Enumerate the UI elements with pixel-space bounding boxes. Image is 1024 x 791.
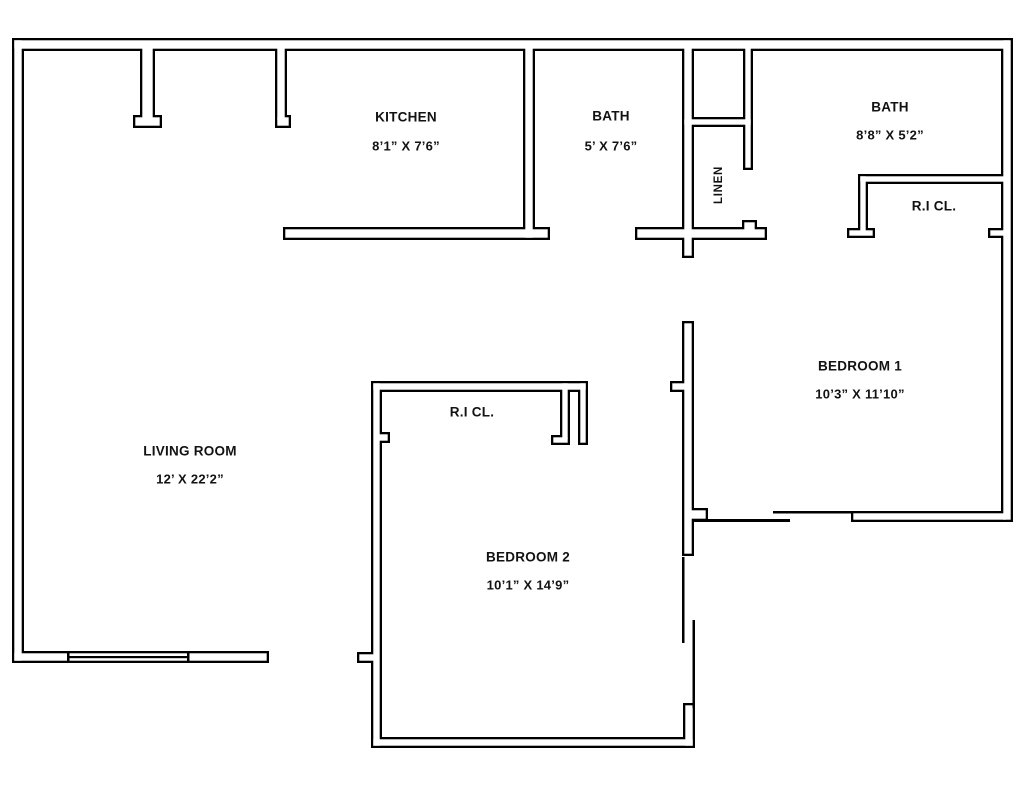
wall-core <box>359 654 374 660</box>
wall-line <box>773 511 853 514</box>
wall-core <box>14 40 21 660</box>
wall-core <box>990 230 1005 235</box>
wall-core <box>562 383 567 438</box>
wall-core <box>684 323 691 553</box>
wall-core <box>378 434 387 440</box>
room-label-linen: LINEN <box>713 166 725 204</box>
floor-plan: KITCHEN 8’1” X 7’6” BATH 5’ X 7’6” LINEN… <box>0 0 1024 791</box>
wall-core <box>690 510 705 518</box>
room-dims-kitchen: 8’1” X 7’6” <box>372 139 440 154</box>
wall-line <box>693 620 696 708</box>
wall-line <box>67 653 70 662</box>
wall-core <box>373 739 692 745</box>
wall-core <box>684 119 750 124</box>
room-label-living-room: LIVING ROOM <box>143 444 237 459</box>
room-dims-living-room: 12’ X 22’2” <box>156 472 224 487</box>
wall-core <box>672 383 685 389</box>
wall-core <box>553 437 567 442</box>
room-dims-bedroom-2: 10’1” X 14’9” <box>487 578 570 593</box>
wall-core <box>744 222 754 231</box>
wall-core <box>285 229 547 237</box>
wall-core <box>860 176 865 231</box>
room-label-bedroom-1: BEDROOM 1 <box>818 359 902 374</box>
wall-core <box>580 383 585 442</box>
wall-core <box>142 47 152 119</box>
room-dims-bath-1: 5’ X 7’6” <box>585 139 638 154</box>
room-label-bedroom-2: BEDROOM 2 <box>486 550 570 565</box>
wall-core <box>1003 40 1010 519</box>
wall-core <box>277 117 288 125</box>
wall-core <box>14 40 1009 48</box>
room-label-bath-2: BATH <box>871 100 909 115</box>
room-label-bath-1: BATH <box>592 109 630 124</box>
room-dims-bedroom-1: 10’3” X 11’10” <box>815 387 905 402</box>
wall-core <box>373 383 585 389</box>
wall-core <box>685 705 692 745</box>
wall-line <box>682 557 685 643</box>
wall-core <box>277 47 284 119</box>
wall-core <box>745 47 750 167</box>
room-label-ri-closet-2: R.I CL. <box>450 405 495 420</box>
wall-line <box>187 653 190 662</box>
wall-core <box>135 117 159 125</box>
wall-line <box>694 519 790 522</box>
wall-line <box>67 656 189 658</box>
room-label-kitchen: KITCHEN <box>375 110 437 125</box>
wall-core <box>849 230 872 235</box>
wall-core <box>684 47 691 255</box>
wall-core <box>860 176 1005 181</box>
wall-core <box>853 513 1005 519</box>
room-dims-bath-2: 8’8” X 5’2” <box>856 128 924 143</box>
wall-core <box>525 47 532 237</box>
room-label-ri-closet-1: R.I CL. <box>912 199 957 214</box>
